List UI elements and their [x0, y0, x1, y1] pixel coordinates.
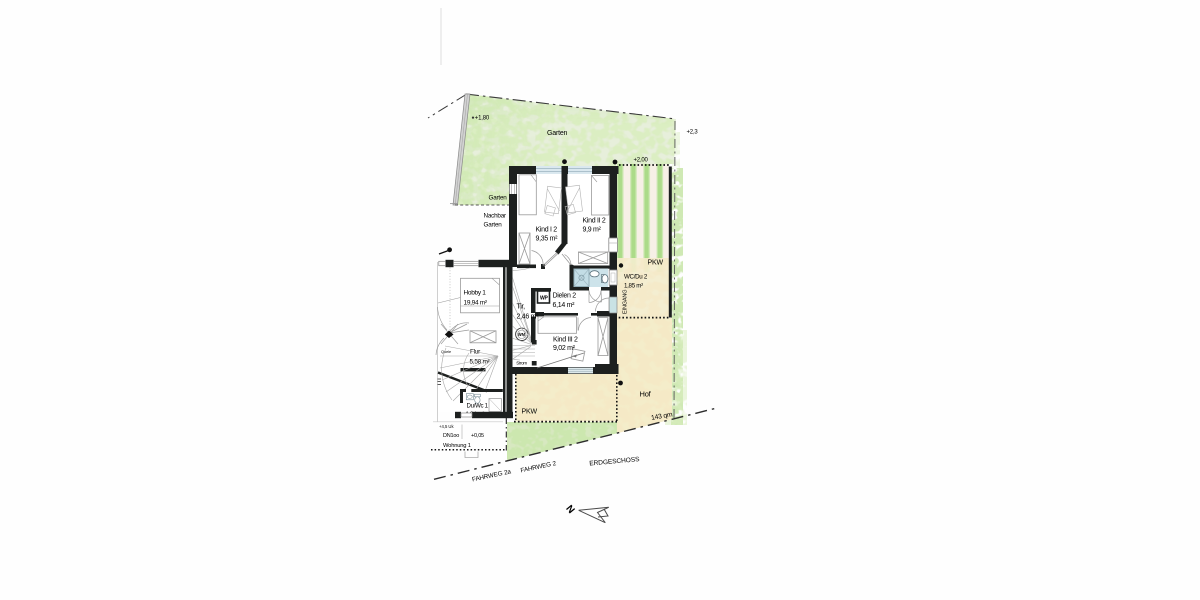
svg-text:Wohnung 1: Wohnung 1 [443, 443, 471, 449]
svg-text:+2,00: +2,00 [634, 158, 649, 164]
svg-text:Garten: Garten [484, 222, 503, 229]
svg-text:WP: WP [540, 296, 549, 302]
svg-text:+2,3: +2,3 [687, 130, 699, 136]
svg-text:Garten: Garten [547, 130, 568, 137]
svg-text:Hobby 1: Hobby 1 [464, 290, 487, 297]
svg-text:9,02 m²: 9,02 m² [553, 345, 576, 352]
svg-text:Hof: Hof [640, 390, 652, 399]
svg-text:PKW: PKW [522, 409, 538, 416]
svg-text:Kind III 2: Kind III 2 [553, 336, 578, 343]
svg-text:Kind I 2: Kind I 2 [536, 227, 558, 234]
svg-text:Dielen 2: Dielen 2 [553, 293, 577, 300]
svg-text:+4,5 Uk: +4,5 Uk [439, 424, 454, 429]
svg-text:2,46 m²: 2,46 m² [517, 313, 540, 320]
svg-text:DN1oo: DN1oo [443, 433, 459, 439]
svg-text:Tir,: Tir, [517, 303, 526, 310]
svg-text:9,9 m²: 9,9 m² [583, 227, 602, 234]
svg-text:Nachbar: Nachbar [484, 213, 507, 220]
svg-text:PKW: PKW [648, 260, 664, 267]
svg-text:6,14 m²: 6,14 m² [553, 302, 576, 309]
svg-text:+1,80: +1,80 [475, 116, 490, 122]
svg-text:WC/Du 2: WC/Du 2 [624, 273, 648, 280]
svg-text:+0,05: +0,05 [471, 433, 484, 439]
svg-text:19,94 m²: 19,94 m² [464, 300, 488, 307]
svg-text:1,85 m²: 1,85 m² [624, 283, 643, 290]
svg-text:EINGANG: EINGANG [623, 290, 629, 314]
svg-text:9,35 m²: 9,35 m² [536, 236, 559, 243]
svg-text:Quele: Quele [441, 350, 451, 354]
svg-text:Garten: Garten [489, 195, 508, 202]
svg-text:Strom: Strom [516, 360, 527, 365]
svg-text:Kind II 2: Kind II 2 [583, 218, 606, 225]
